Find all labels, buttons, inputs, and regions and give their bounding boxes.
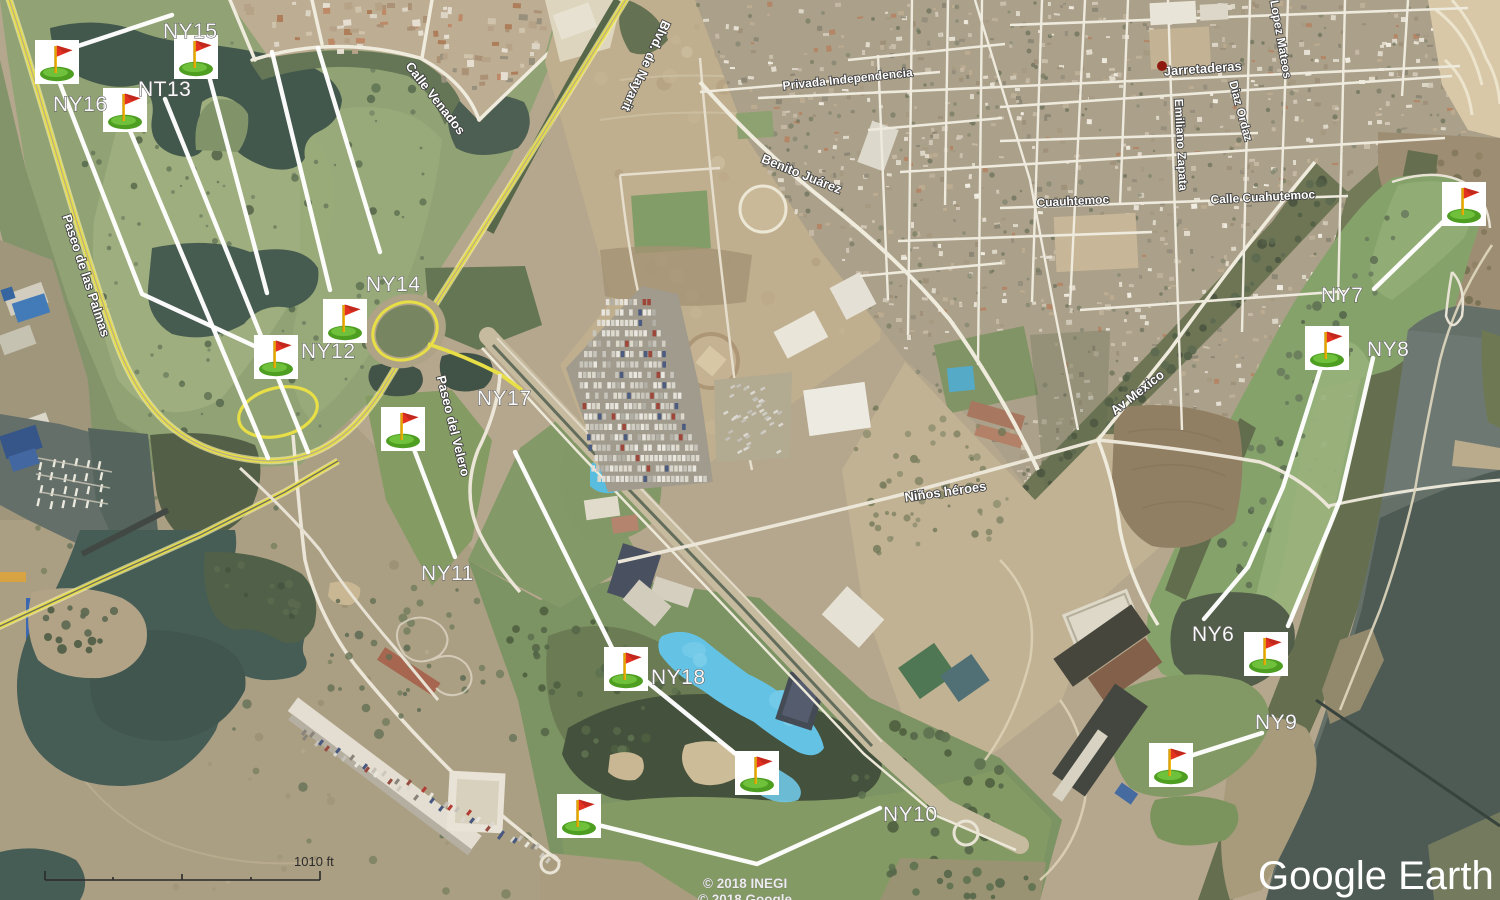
svg-text:Google Earth: Google Earth [1258, 854, 1494, 898]
svg-text:NY17: NY17 [477, 387, 532, 410]
svg-text:NY7: NY7 [1321, 284, 1363, 307]
svg-text:NY15: NY15 [163, 20, 218, 43]
svg-text:NY9: NY9 [1255, 711, 1297, 734]
svg-text:NY11: NY11 [421, 562, 474, 585]
svg-text:NY8: NY8 [1367, 338, 1409, 361]
svg-text:© 2018 Google: © 2018 Google [698, 892, 792, 900]
svg-text:NY12: NY12 [301, 340, 356, 363]
svg-text:1010 ft: 1010 ft [294, 854, 334, 869]
svg-text:NY6: NY6 [1192, 623, 1234, 646]
svg-text:NY16: NY16 [53, 93, 108, 116]
svg-text:NT13: NT13 [138, 78, 191, 101]
svg-text:NY18: NY18 [651, 666, 706, 689]
svg-text:© 2018 INEGI: © 2018 INEGI [703, 876, 787, 891]
svg-text:NY10: NY10 [883, 803, 938, 826]
svg-text:NY14: NY14 [366, 273, 421, 296]
